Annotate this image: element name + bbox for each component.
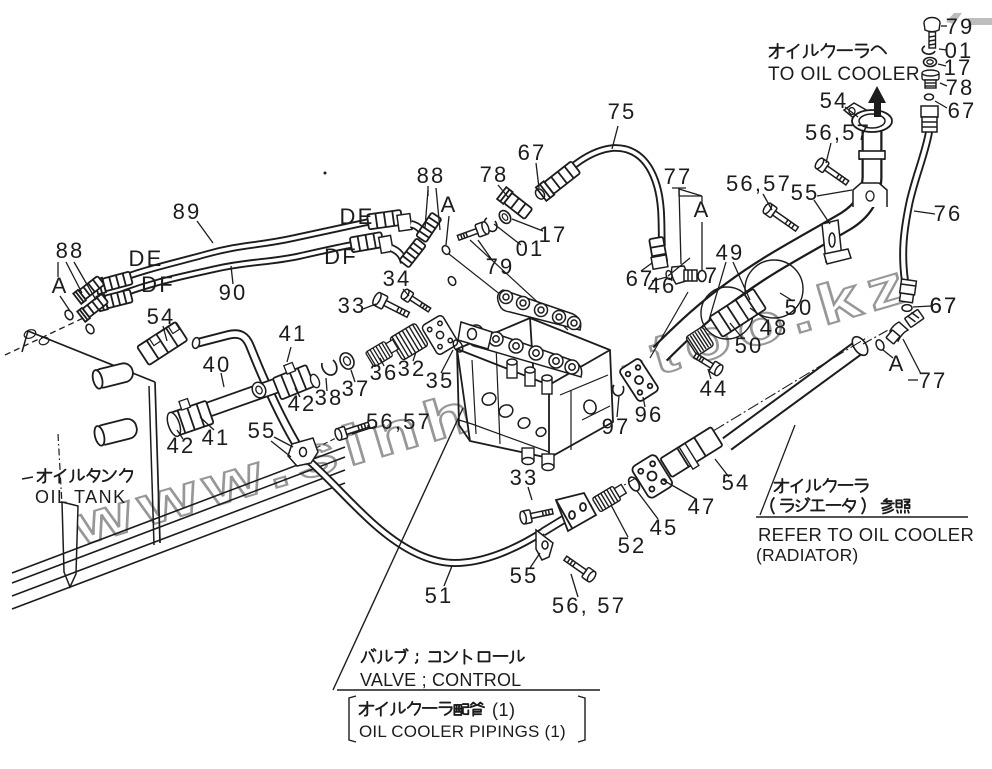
svg-text:49: 49 — [716, 240, 745, 265]
svg-text:41: 41 — [202, 425, 231, 450]
svg-text:37: 37 — [342, 376, 371, 401]
svg-text:38: 38 — [315, 385, 344, 410]
svg-text:67: 67 — [518, 140, 547, 165]
svg-text:A: A — [889, 351, 906, 376]
svg-text:(1): (1) — [492, 700, 516, 720]
svg-text:OIL COOLER PIPINGS (1): OIL COOLER PIPINGS (1) — [359, 722, 566, 741]
svg-text:48: 48 — [760, 315, 789, 340]
svg-text:88: 88 — [417, 163, 446, 188]
svg-text:36: 36 — [370, 360, 399, 385]
svg-text:56,57: 56,57 — [366, 409, 432, 434]
svg-text:76: 76 — [934, 201, 963, 226]
svg-text:VALVE ; CONTROL: VALVE ; CONTROL — [360, 670, 521, 690]
svg-text:DE: DE — [129, 246, 164, 271]
svg-text:54: 54 — [147, 304, 176, 329]
svg-text:DE: DE — [340, 204, 375, 229]
svg-text:REFER TO OIL COOLER: REFER TO OIL COOLER — [758, 524, 974, 545]
svg-text:67: 67 — [948, 98, 977, 123]
svg-text:77: 77 — [919, 368, 948, 393]
svg-text:54: 54 — [722, 470, 751, 495]
svg-text:79: 79 — [946, 14, 975, 39]
svg-text:44: 44 — [700, 376, 729, 401]
svg-text:50: 50 — [785, 295, 814, 320]
svg-text:54: 54 — [820, 88, 849, 113]
svg-text:45: 45 — [650, 515, 679, 540]
svg-text:40: 40 — [203, 352, 232, 377]
svg-text:88: 88 — [56, 238, 85, 263]
svg-text:97: 97 — [602, 414, 631, 439]
svg-text:OIL TANK: OIL TANK — [35, 487, 127, 507]
svg-text:52: 52 — [618, 533, 647, 558]
svg-text:41: 41 — [279, 321, 308, 346]
svg-text:78: 78 — [480, 162, 509, 187]
svg-text:33: 33 — [510, 465, 539, 490]
svg-text:77: 77 — [664, 164, 693, 189]
svg-text:DF: DF — [324, 244, 358, 269]
svg-text:96: 96 — [635, 402, 664, 427]
svg-text:50: 50 — [735, 333, 764, 358]
svg-text:56,57: 56,57 — [726, 171, 792, 196]
svg-text:42: 42 — [288, 391, 317, 416]
svg-text:(RADIATOR): (RADIATOR) — [756, 545, 858, 565]
svg-text:34: 34 — [383, 266, 412, 291]
svg-text:47: 47 — [688, 494, 717, 519]
svg-text:A: A — [441, 192, 458, 217]
svg-text:DF: DF — [141, 272, 175, 297]
svg-text:01: 01 — [516, 236, 545, 261]
svg-text:78: 78 — [946, 75, 975, 100]
svg-text:90: 90 — [219, 280, 248, 305]
svg-text:75: 75 — [608, 99, 637, 124]
svg-text:55: 55 — [791, 180, 820, 205]
svg-text:32: 32 — [398, 356, 427, 381]
svg-text:35: 35 — [426, 368, 455, 393]
svg-text:33: 33 — [338, 293, 367, 318]
svg-text:46: 46 — [648, 273, 677, 298]
svg-text:56, 57: 56, 57 — [552, 593, 626, 618]
svg-text:A: A — [694, 197, 711, 222]
svg-text:A: A — [52, 273, 69, 298]
svg-text:89: 89 — [173, 199, 202, 224]
svg-text:7: 7 — [705, 263, 719, 288]
svg-text:79: 79 — [486, 254, 515, 279]
svg-text:56,57: 56,57 — [805, 120, 871, 145]
svg-text:55: 55 — [510, 563, 539, 588]
svg-text:42: 42 — [167, 433, 196, 458]
svg-text:51: 51 — [425, 583, 454, 608]
svg-text:67: 67 — [930, 293, 959, 318]
svg-text:TO OIL COOLER: TO OIL COOLER — [768, 64, 920, 85]
svg-text:55: 55 — [248, 418, 277, 443]
